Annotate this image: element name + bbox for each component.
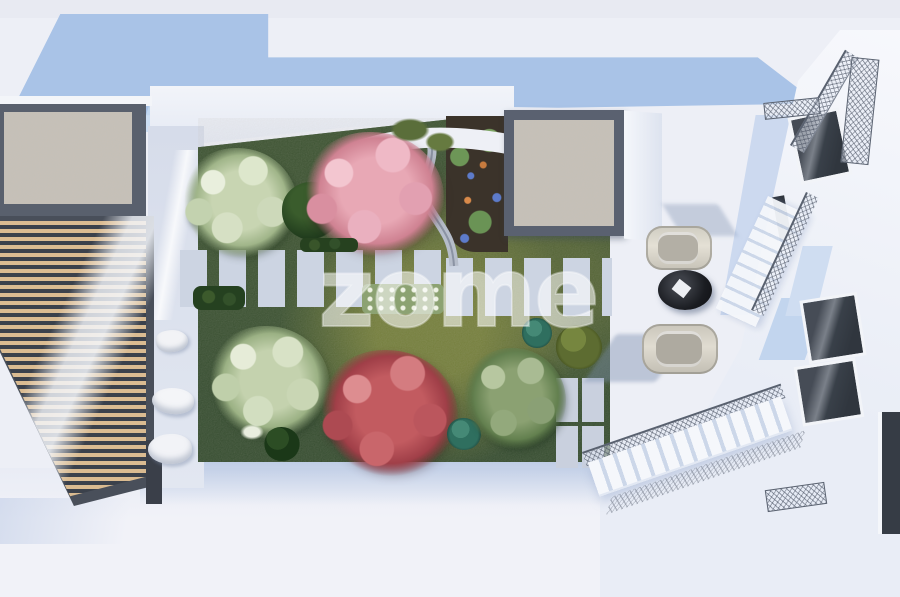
paver-grid-2 xyxy=(582,378,604,422)
pergola-ground-shadow xyxy=(0,498,180,544)
skylight-wall-edge xyxy=(624,111,662,242)
left-roof-gravel xyxy=(4,112,132,204)
car-bottom-windshield xyxy=(656,331,702,367)
car-top-windshield xyxy=(658,232,698,264)
green-tree-right xyxy=(462,348,566,452)
teal-shrub-1 xyxy=(306,408,340,444)
grass-tuft-2 xyxy=(425,132,455,152)
window-right-edge xyxy=(878,412,900,534)
pergola-light-streak xyxy=(0,216,154,506)
grass-tuft-1 xyxy=(390,118,430,142)
dark-ball-bush-1 xyxy=(205,405,239,438)
pergola xyxy=(0,216,154,506)
hedge-left xyxy=(193,286,245,310)
watermark: zome xyxy=(318,238,598,348)
paver-grid-3 xyxy=(556,426,578,468)
window-lower xyxy=(794,358,865,427)
window-mid xyxy=(799,292,866,364)
gravel-skylight-fill xyxy=(514,120,614,226)
aerial-render-scene: zome xyxy=(0,0,900,597)
pale-blossom-tree-top xyxy=(180,148,298,262)
white-flower-cluster xyxy=(240,424,264,440)
red-maple-tree xyxy=(318,350,458,480)
dark-ball-bush-2 xyxy=(264,427,300,461)
